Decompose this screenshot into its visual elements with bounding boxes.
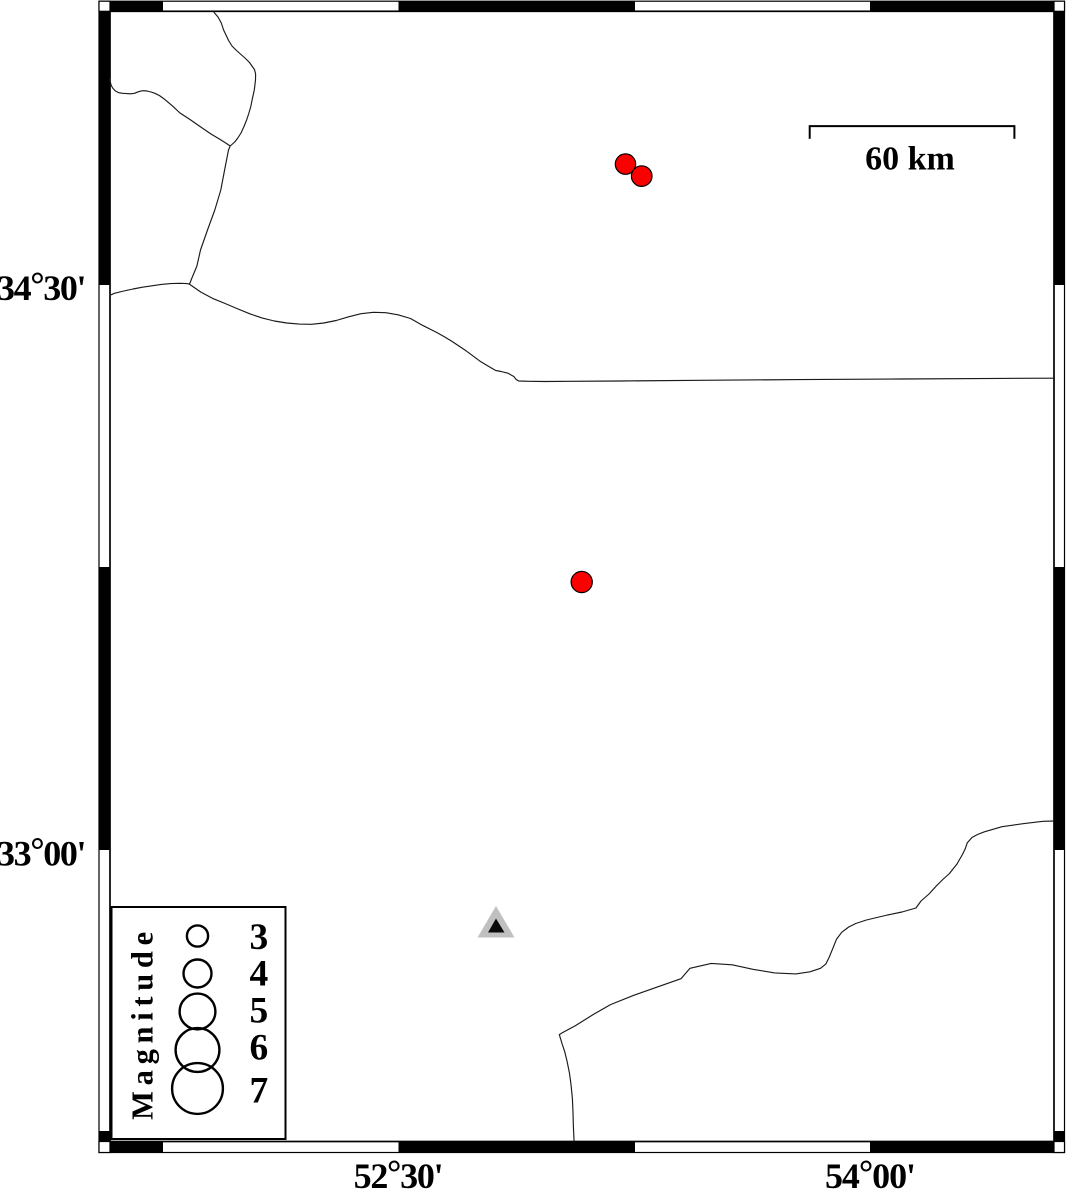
- svg-text:5: 5: [250, 990, 269, 1031]
- svg-text:60 km: 60 km: [865, 141, 955, 178]
- svg-text:Magnitude: Magnitude: [125, 926, 159, 1120]
- svg-text:3: 3: [250, 917, 269, 958]
- svg-text:34°30': 34°30': [0, 265, 87, 309]
- svg-text:4: 4: [250, 953, 269, 994]
- svg-text:7: 7: [250, 1071, 269, 1112]
- svg-text:33°00': 33°00': [0, 830, 87, 874]
- svg-text:6: 6: [250, 1027, 269, 1068]
- svg-text:54°00': 54°00': [825, 1153, 916, 1191]
- svg-text:52°30': 52°30': [354, 1153, 444, 1191]
